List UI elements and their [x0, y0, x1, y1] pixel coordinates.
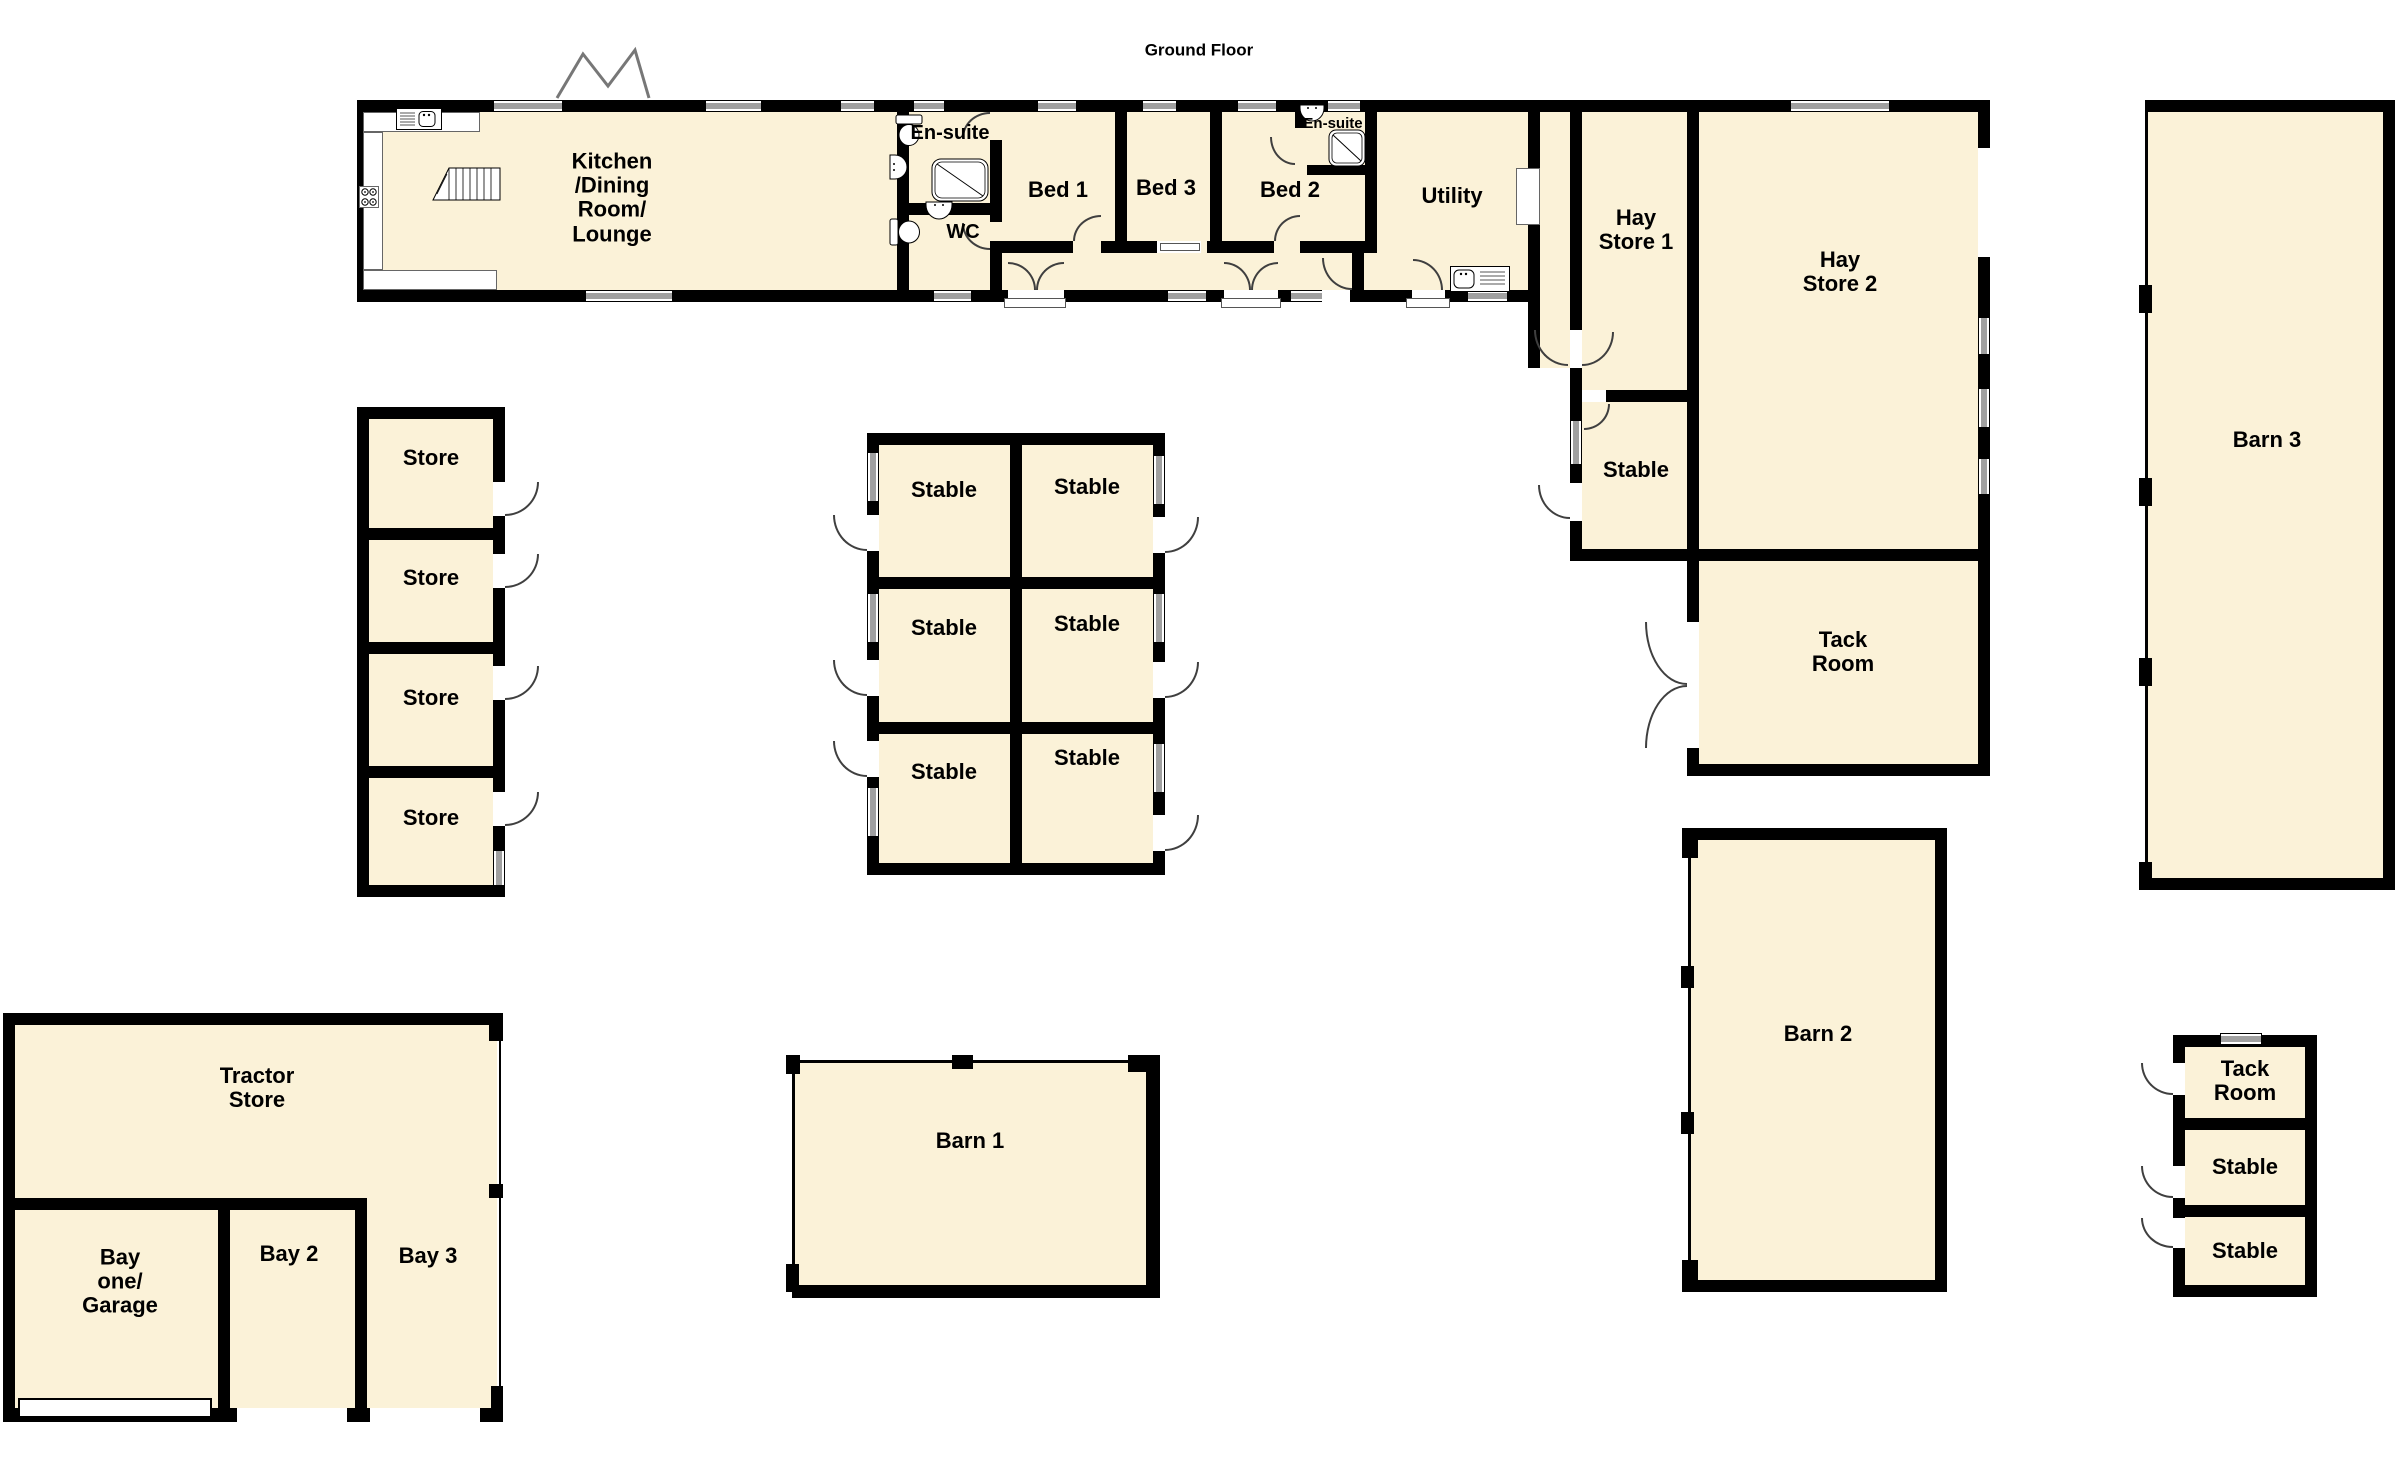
room-label-store-1: Store [403, 446, 459, 470]
room-label-wc: WC [946, 221, 979, 243]
wall [369, 766, 493, 778]
wall [1688, 828, 1947, 840]
window-marker [1978, 388, 1990, 428]
wall [2173, 1285, 2317, 1297]
window-marker [867, 452, 879, 502]
room-label-stable-6: Stable [1054, 746, 1120, 770]
wall [1115, 112, 1127, 253]
wall [867, 837, 879, 863]
room-label-bay-2: Bay 2 [260, 1242, 319, 1266]
door-swing-arc [1645, 685, 1687, 748]
wall [867, 777, 879, 787]
wall [2173, 1095, 2185, 1166]
door-swing-arc [833, 660, 867, 696]
room-label-store-3: Store [403, 686, 459, 710]
wall [1687, 764, 1990, 776]
post [2139, 285, 2152, 313]
wall [1978, 495, 1990, 776]
wall [347, 1408, 370, 1422]
post [786, 1055, 800, 1074]
room-label-bed-3: Bed 3 [1136, 176, 1196, 200]
room-floor-barn-2 [1690, 840, 1935, 1280]
wall [1687, 549, 1990, 561]
hob-icon [359, 186, 379, 208]
wall [2383, 100, 2395, 890]
wall [357, 407, 505, 419]
wall [1153, 851, 1165, 863]
wall [792, 1285, 1160, 1298]
wall [1153, 643, 1165, 662]
wall [3, 1013, 15, 1422]
post [786, 1264, 799, 1292]
door-swing-arc [1165, 662, 1199, 698]
wall [867, 863, 1165, 875]
wall [879, 577, 1153, 589]
wall [1101, 241, 1157, 253]
post [1681, 966, 1694, 988]
wall [990, 250, 1002, 290]
wall [1570, 100, 1582, 330]
wall [1570, 368, 1582, 420]
wall [1688, 1280, 1947, 1292]
door-swing-arc [505, 792, 539, 826]
wall [218, 1210, 230, 1408]
wall [3, 1013, 503, 1025]
window-marker [1153, 455, 1165, 505]
window-marker [867, 787, 879, 837]
room-floor-bay-3-top [367, 1198, 497, 1210]
basin-icon [889, 154, 909, 180]
door-swing-arc [833, 515, 867, 551]
window-marker [585, 290, 673, 302]
wall [867, 696, 879, 741]
room-label-stable-3: Stable [911, 616, 977, 640]
utility-sink-icon [1450, 266, 1510, 292]
wall [2173, 1248, 2185, 1285]
post [952, 1055, 973, 1069]
post [2139, 478, 2152, 506]
window-marker [705, 100, 762, 112]
wall [867, 433, 1165, 445]
wall [2305, 1035, 2317, 1297]
post [2139, 658, 2152, 686]
wall [867, 502, 879, 515]
room-label-utility: Utility [1421, 184, 1482, 208]
wall [1153, 793, 1165, 815]
room-label-ensuite-2: En-suite [1303, 116, 1362, 133]
garage-door-panel [18, 1398, 212, 1418]
window-marker [493, 100, 563, 112]
room-label-barn-1: Barn 1 [936, 1129, 1004, 1153]
wall [1570, 549, 1700, 561]
wall [1146, 1058, 1160, 1298]
wall [491, 1386, 503, 1422]
room-label-stable-2: Stable [1054, 475, 1120, 499]
room-label-hay-store-1: Hay Store 1 [1599, 206, 1674, 254]
post [2139, 862, 2152, 890]
window-marker [840, 100, 875, 112]
room-label-stable-1: Stable [911, 478, 977, 502]
wall [2145, 878, 2395, 890]
wall [1365, 112, 1377, 253]
wall [2185, 1118, 2305, 1130]
post [1682, 1260, 1698, 1292]
floor-plan-canvas: Ground Floor [0, 0, 2400, 1480]
post [489, 1025, 503, 1041]
wall [493, 516, 505, 554]
window-marker [1327, 100, 1361, 112]
wall [1570, 100, 1990, 112]
wall [867, 643, 879, 660]
room-floor-barn-1 [794, 1062, 1146, 1286]
room-label-stable-4: Stable [1054, 612, 1120, 636]
wall [1978, 100, 1990, 148]
toilet-icon [889, 217, 921, 247]
wall [1978, 257, 1990, 317]
window-marker [1237, 100, 1277, 112]
room-label-stable: Stable [1603, 458, 1669, 482]
room-label-stable-5: Stable [911, 760, 977, 784]
room-label-store-2: Store [403, 566, 459, 590]
wall [1978, 428, 1990, 458]
wall [1687, 748, 1699, 764]
door-swing-arc [505, 482, 539, 516]
wall [15, 1198, 367, 1210]
wall [1010, 445, 1022, 863]
kitchen-counter [363, 270, 497, 290]
wall [369, 642, 493, 654]
door-swing-arc [833, 741, 867, 777]
window-marker [1978, 458, 1990, 495]
wall [2185, 1205, 2305, 1217]
room-label-hay-store-2: Hay Store 2 [1803, 248, 1878, 296]
wall [1352, 253, 1364, 302]
post [1128, 1055, 1160, 1072]
window-marker [867, 593, 879, 643]
room-floor-barn-3 [2147, 112, 2383, 878]
room-label-tack-room: Tack Room [1812, 628, 1874, 676]
post [1681, 1112, 1694, 1134]
room-label-barn-3: Barn 3 [2233, 428, 2301, 452]
room-label-ensuite-1: En-suite [911, 122, 990, 144]
door-swing-arc [1645, 622, 1687, 685]
wall [1300, 241, 1365, 253]
sliding-door-marker [1160, 243, 1200, 251]
wall [355, 1210, 367, 1408]
room-floor-bay-2 [230, 1210, 355, 1408]
wall [867, 551, 879, 593]
wall [1687, 112, 1699, 549]
window-marker [933, 290, 972, 302]
open-side-line [792, 1060, 1160, 1063]
shower-icon [931, 158, 989, 202]
window-marker [1167, 290, 1207, 302]
wall [493, 700, 505, 792]
room-label-bed-2: Bed 2 [1260, 178, 1320, 202]
door-swing-arc [505, 554, 539, 588]
room-label-barn-2: Barn 2 [1784, 1022, 1852, 1046]
wall [879, 722, 1153, 734]
post [489, 1184, 503, 1198]
door-sill [1221, 298, 1281, 308]
room-label-small-stable-1: Stable [2212, 1155, 2278, 1179]
door-swing-arc [1165, 517, 1199, 553]
room-floor-hay-store-2 [1699, 112, 1978, 549]
window-marker [1978, 317, 1990, 355]
door-swing-arc [2141, 1166, 2173, 1198]
room-label-store-4: Store [403, 806, 459, 830]
door-sill [1004, 298, 1066, 308]
wall [493, 407, 505, 482]
wall [1153, 505, 1165, 517]
wall [2173, 1035, 2185, 1063]
door-opening [1322, 290, 1350, 302]
room-floor-bay-3 [367, 1210, 497, 1408]
room-label-small-tack-room: Tack Room [2214, 1057, 2276, 1105]
wall [493, 588, 505, 666]
door-swing-arc [1165, 815, 1199, 851]
room-label-tractor-store: Tractor Store [220, 1064, 295, 1112]
wall [1207, 241, 1274, 253]
wall [357, 885, 505, 897]
wall-break-zigzag [553, 46, 653, 100]
wall [990, 140, 1002, 222]
room-label-bay-one: Bay one/ Garage [82, 1246, 158, 1319]
door-opening [1582, 390, 1606, 402]
room-label-bay-3: Bay 3 [399, 1244, 458, 1268]
door-swing-arc [505, 666, 539, 700]
window-marker [1142, 100, 1177, 112]
window-marker [1790, 100, 1890, 112]
wall [990, 241, 1073, 253]
open-side-line [499, 1025, 501, 1405]
window-marker [1153, 593, 1165, 643]
basin-icon [924, 201, 954, 221]
room-label-bed-1: Bed 1 [1028, 178, 1088, 202]
open-side-line [792, 1060, 795, 1286]
window-marker [1037, 100, 1077, 112]
room-label-small-stable-2: Stable [2212, 1239, 2278, 1263]
wall [1570, 465, 1582, 483]
door-swing-arc [2141, 1063, 2173, 1095]
room-label-kitchen: Kitchen /Dining Room/ Lounge [572, 150, 653, 247]
open-side-line [1688, 840, 1691, 1280]
wall [1978, 355, 1990, 388]
door-swing-arc [2141, 1218, 2173, 1248]
wall [2145, 100, 2395, 112]
post [1682, 828, 1698, 858]
window-marker [493, 850, 505, 886]
window-marker [2220, 1033, 2262, 1045]
wall [493, 826, 505, 850]
wall [867, 445, 879, 452]
window-marker [913, 100, 945, 112]
door-swing-arc [1538, 485, 1570, 519]
kitchen-sink-icon [396, 108, 442, 130]
wall [1153, 698, 1165, 743]
page-title: Ground Floor [1145, 42, 1254, 61]
wall [1935, 828, 1947, 1292]
wall [1153, 445, 1165, 455]
door-sill [1406, 298, 1450, 308]
wall [357, 407, 369, 897]
stairs-icon [432, 166, 502, 202]
wall [2173, 1198, 2185, 1218]
wall [369, 528, 493, 540]
shower-icon [1328, 129, 1366, 167]
window-marker [1153, 743, 1165, 793]
wall [1687, 561, 1699, 622]
wall [1210, 112, 1222, 253]
window-marker [1570, 420, 1582, 465]
utility-cupboard [1516, 168, 1540, 225]
wall [1153, 553, 1165, 593]
